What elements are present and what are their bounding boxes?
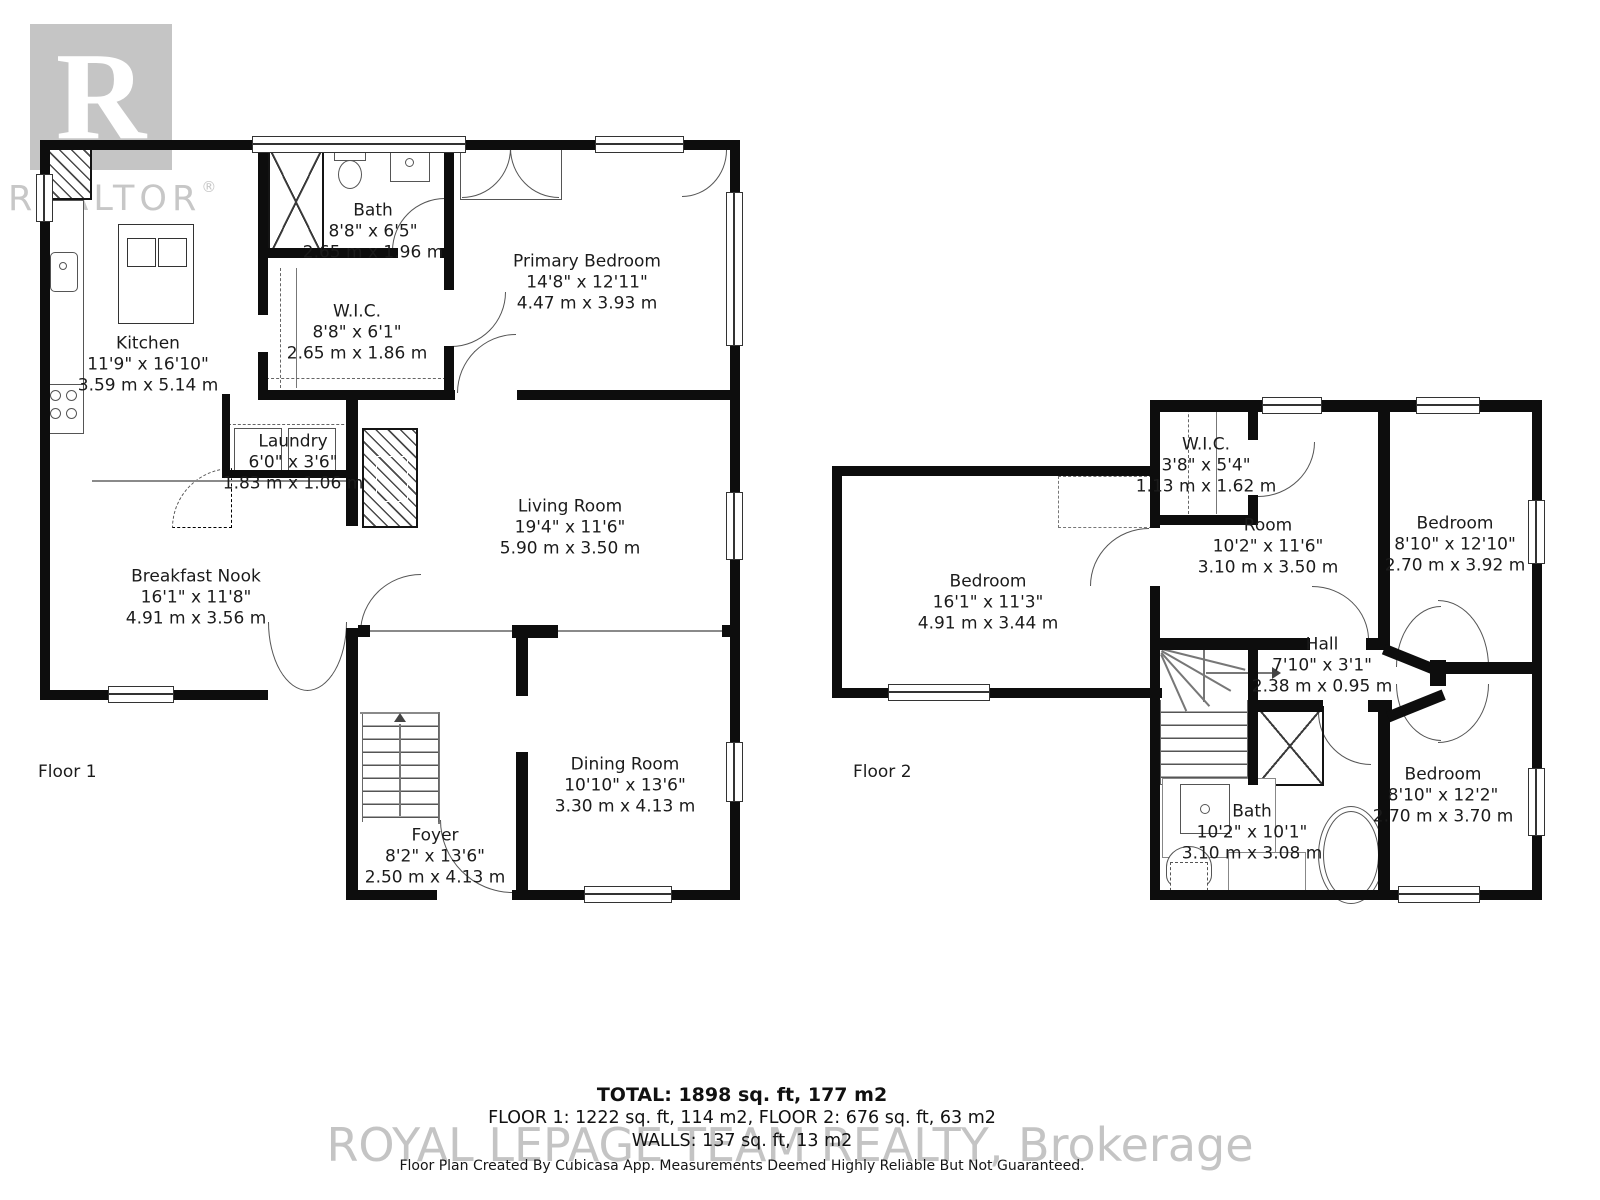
room-label-primary-bedroom: Primary Bedroom 14'8" x 12'11" 4.47 m x … xyxy=(513,252,661,315)
room-label-living-room: Living Room 19'4" x 11'6" 5.90 m x 3.50 … xyxy=(500,497,641,560)
wall xyxy=(444,258,454,290)
sink-faucet xyxy=(405,158,414,167)
window xyxy=(726,742,743,802)
floor-areas: FLOOR 1: 1222 sq. ft, 114 m2, FLOOR 2: 6… xyxy=(488,1107,996,1130)
floor1-label: Floor 1 xyxy=(38,762,97,782)
wall xyxy=(512,625,558,638)
room-dim-metric: 2.38 m x 0.95 m xyxy=(1252,677,1393,698)
stair-up-arrow xyxy=(394,713,406,722)
wall xyxy=(832,688,888,698)
window xyxy=(726,492,743,560)
room-dim-imperial: 8'8" x 6'5" xyxy=(303,222,444,243)
window xyxy=(252,136,466,153)
wall xyxy=(988,688,1162,698)
room-dim-imperial: 3'8" x 5'4" xyxy=(1136,456,1277,477)
wall xyxy=(346,890,437,900)
burner xyxy=(66,408,77,419)
room-dim-imperial: 7'10" x 3'1" xyxy=(1252,656,1393,677)
room-name: Bedroom xyxy=(1373,765,1514,786)
room-name: Bath xyxy=(1182,802,1323,823)
door-arc xyxy=(1090,528,1149,586)
window xyxy=(726,192,743,346)
room-name: Hall xyxy=(1252,635,1393,656)
room-dim-imperial: 6'0" x 3'6" xyxy=(223,453,364,474)
room-dim-metric: 2.65 m x 1.96 m xyxy=(303,243,444,264)
room-dim-metric: 5.90 m x 3.50 m xyxy=(500,539,641,560)
room-name: Primary Bedroom xyxy=(513,252,661,273)
room-label-room: Room 10'2" x 11'6" 3.10 m x 3.50 m xyxy=(1198,516,1339,579)
total-area: TOTAL: 1898 sq. ft, 177 m2 xyxy=(488,1083,996,1107)
wall xyxy=(722,625,732,637)
room-dim-imperial: 8'10" x 12'10" xyxy=(1385,535,1526,556)
room-label-bath-f1: Bath 8'8" x 6'5" 2.65 m x 1.96 m xyxy=(303,201,444,264)
wall xyxy=(346,690,358,900)
wall xyxy=(516,752,528,890)
room-dim-metric: 2.70 m x 3.70 m xyxy=(1373,807,1514,828)
burner xyxy=(50,390,61,401)
room-label-dining-room: Dining Room 10'10" x 13'6" 3.30 m x 4.13… xyxy=(555,755,696,818)
window xyxy=(1416,397,1480,414)
fireplace-insert xyxy=(376,456,408,502)
room-dim-metric: 2.65 m x 1.86 m xyxy=(287,344,428,365)
wall xyxy=(1150,586,1160,900)
floor2-label: Floor 2 xyxy=(853,762,912,782)
room-name: Bedroom xyxy=(1385,514,1526,535)
room-dim-imperial: 11'9" x 16'10" xyxy=(78,355,219,376)
staircase xyxy=(1160,700,1248,785)
closet-rod-dashed xyxy=(266,378,446,379)
toilet-bowl xyxy=(338,160,362,189)
sink-drain xyxy=(59,262,67,270)
room-dim-metric: 4.47 m x 3.93 m xyxy=(513,294,661,315)
wall xyxy=(1150,400,1262,412)
wall xyxy=(258,140,268,315)
wall xyxy=(512,890,584,900)
room-dim-imperial: 16'1" x 11'8" xyxy=(126,588,267,609)
closet-door-arc xyxy=(682,150,727,197)
laundry-dashed-line xyxy=(228,424,354,425)
cooktop-grate xyxy=(127,238,156,267)
room-dim-metric: 2.50 m x 4.13 m xyxy=(365,868,506,889)
room-label-bedroom-bottom-right: Bedroom 8'10" x 12'2" 2.70 m x 3.70 m xyxy=(1373,765,1514,828)
room-name: Bedroom xyxy=(918,572,1059,593)
window xyxy=(595,136,684,153)
room-dim-imperial: 16'1" x 11'3" xyxy=(918,593,1059,614)
disclaimer-text: Floor Plan Created By Cubicasa App. Meas… xyxy=(399,1158,1084,1174)
wall xyxy=(516,638,528,696)
area-summary: TOTAL: 1898 sq. ft, 177 m2 FLOOR 1: 1222… xyxy=(488,1083,996,1152)
door-arc xyxy=(1318,712,1371,765)
room-dim-metric: 2.70 m x 3.92 m xyxy=(1385,556,1526,577)
cooktop-grate xyxy=(158,238,187,267)
room-label-wic-f2: W.I.C. 3'8" x 5'4" 1.13 m x 1.62 m xyxy=(1136,435,1277,498)
window xyxy=(36,174,53,222)
burner xyxy=(50,408,61,419)
double-door-arc xyxy=(1438,600,1489,667)
room-dim-imperial: 19'4" x 11'6" xyxy=(500,518,641,539)
wall xyxy=(40,140,50,174)
wall xyxy=(172,690,268,700)
wall xyxy=(1248,700,1323,712)
stair-arrow-line xyxy=(399,724,401,816)
registered-mark: ® xyxy=(201,178,216,196)
wall xyxy=(1320,400,1416,412)
wall xyxy=(1478,890,1542,900)
window xyxy=(1528,768,1545,836)
shower xyxy=(1256,706,1324,786)
window xyxy=(1398,886,1480,903)
wall xyxy=(358,625,370,637)
room-dim-metric: 3.10 m x 3.08 m xyxy=(1182,844,1323,865)
window xyxy=(1528,500,1545,564)
room-label-kitchen: Kitchen 11'9" x 16'10" 3.59 m x 5.14 m xyxy=(78,334,219,397)
room-name: Bath xyxy=(303,201,444,222)
burner xyxy=(66,390,77,401)
double-door-arc xyxy=(1438,684,1489,743)
room-dim-imperial: 8'10" x 12'2" xyxy=(1373,786,1514,807)
room-name: Laundry xyxy=(223,432,364,453)
wall xyxy=(1150,890,1398,900)
wall xyxy=(444,140,454,258)
room-label-bedroom-left: Bedroom 16'1" x 11'3" 4.91 m x 3.44 m xyxy=(918,572,1059,635)
room-label-hall: Hall 7'10" x 3'1" 2.38 m x 0.95 m xyxy=(1252,635,1393,698)
wall xyxy=(832,466,1152,476)
room-dim-imperial: 8'8" x 6'1" xyxy=(287,323,428,344)
room-dim-metric: 1.83 m x 1.06 m xyxy=(223,474,364,495)
kitchen-sink xyxy=(50,252,78,292)
room-name: Breakfast Nook xyxy=(126,567,267,588)
window xyxy=(888,684,990,701)
room-label-laundry: Laundry 6'0" x 3'6" 1.83 m x 1.06 m xyxy=(223,432,364,495)
wall xyxy=(464,140,595,150)
floorplan-canvas: R REALTOR® ROYAL LEPAGE TEAM REALTY, Bro… xyxy=(0,0,1600,1200)
room-name: W.I.C. xyxy=(1136,435,1277,456)
room-label-bedroom-top-right: Bedroom 8'10" x 12'10" 2.70 m x 3.92 m xyxy=(1385,514,1526,577)
room-name: Kitchen xyxy=(78,334,219,355)
wall xyxy=(517,390,740,400)
wall xyxy=(40,690,108,700)
room-name: Dining Room xyxy=(555,755,696,776)
french-door-arc xyxy=(307,622,347,691)
room-dim-metric: 3.10 m x 3.50 m xyxy=(1198,558,1339,579)
wall xyxy=(832,466,842,698)
door-arc xyxy=(1312,586,1369,640)
closet-rod-dashed xyxy=(280,268,281,388)
french-door-arc xyxy=(268,622,308,691)
room-dim-metric: 3.59 m x 5.14 m xyxy=(78,376,219,397)
wall xyxy=(40,220,50,700)
bathtub-inner xyxy=(1323,811,1379,899)
room-name: Living Room xyxy=(500,497,641,518)
room-name: Foyer xyxy=(365,826,506,847)
wall xyxy=(1532,400,1542,500)
room-dim-imperial: 8'2" x 13'6" xyxy=(365,847,506,868)
room-dim-imperial: 10'2" x 11'6" xyxy=(1198,537,1339,558)
window xyxy=(584,886,672,903)
window xyxy=(108,686,174,703)
room-dim-metric: 4.91 m x 3.56 m xyxy=(126,609,267,630)
wall xyxy=(730,800,740,900)
room-label-foyer: Foyer 8'2" x 13'6" 2.50 m x 4.13 m xyxy=(365,826,506,889)
wall xyxy=(730,140,740,192)
wall xyxy=(1440,662,1542,674)
wall xyxy=(730,558,740,742)
room-dim-metric: 3.30 m x 4.13 m xyxy=(555,797,696,818)
room-label-breakfast-nook: Breakfast Nook 16'1" x 11'8" 4.91 m x 3.… xyxy=(126,567,267,630)
room-label-bath-f2: Bath 10'2" x 10'1" 3.10 m x 3.08 m xyxy=(1182,802,1323,865)
wall xyxy=(730,344,740,492)
room-name: W.I.C. xyxy=(287,302,428,323)
room-label-wic-f1: W.I.C. 8'8" x 6'1" 2.65 m x 1.86 m xyxy=(287,302,428,365)
room-dim-imperial: 10'10" x 13'6" xyxy=(555,776,696,797)
room-dim-imperial: 14'8" x 12'11" xyxy=(513,273,661,294)
wall xyxy=(346,628,358,700)
room-dim-imperial: 10'2" x 10'1" xyxy=(1182,823,1323,844)
room-name: Room xyxy=(1198,516,1339,537)
room-dim-metric: 1.13 m x 1.62 m xyxy=(1136,477,1277,498)
window xyxy=(1262,397,1322,414)
wall xyxy=(40,140,252,150)
walls-area: WALLS: 137 sq. ft, 13 m2 xyxy=(488,1130,996,1152)
room-dim-metric: 4.91 m x 3.44 m xyxy=(918,614,1059,635)
